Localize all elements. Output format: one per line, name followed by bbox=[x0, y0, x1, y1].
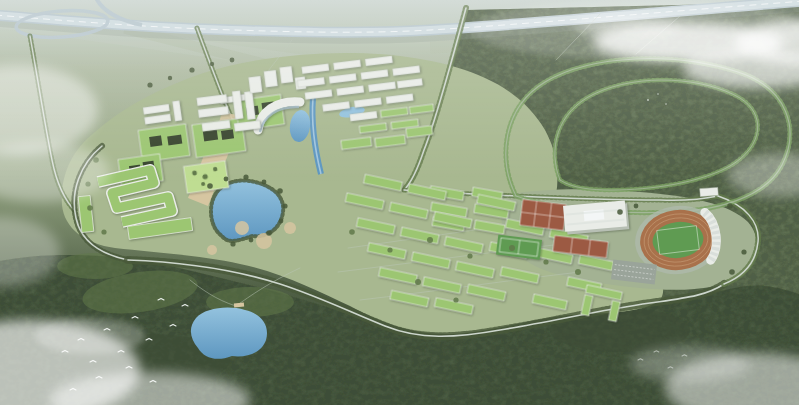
atmospheric-haze bbox=[0, 0, 799, 405]
rendering-canvas bbox=[0, 0, 799, 405]
aerial-rendering bbox=[0, 0, 799, 405]
